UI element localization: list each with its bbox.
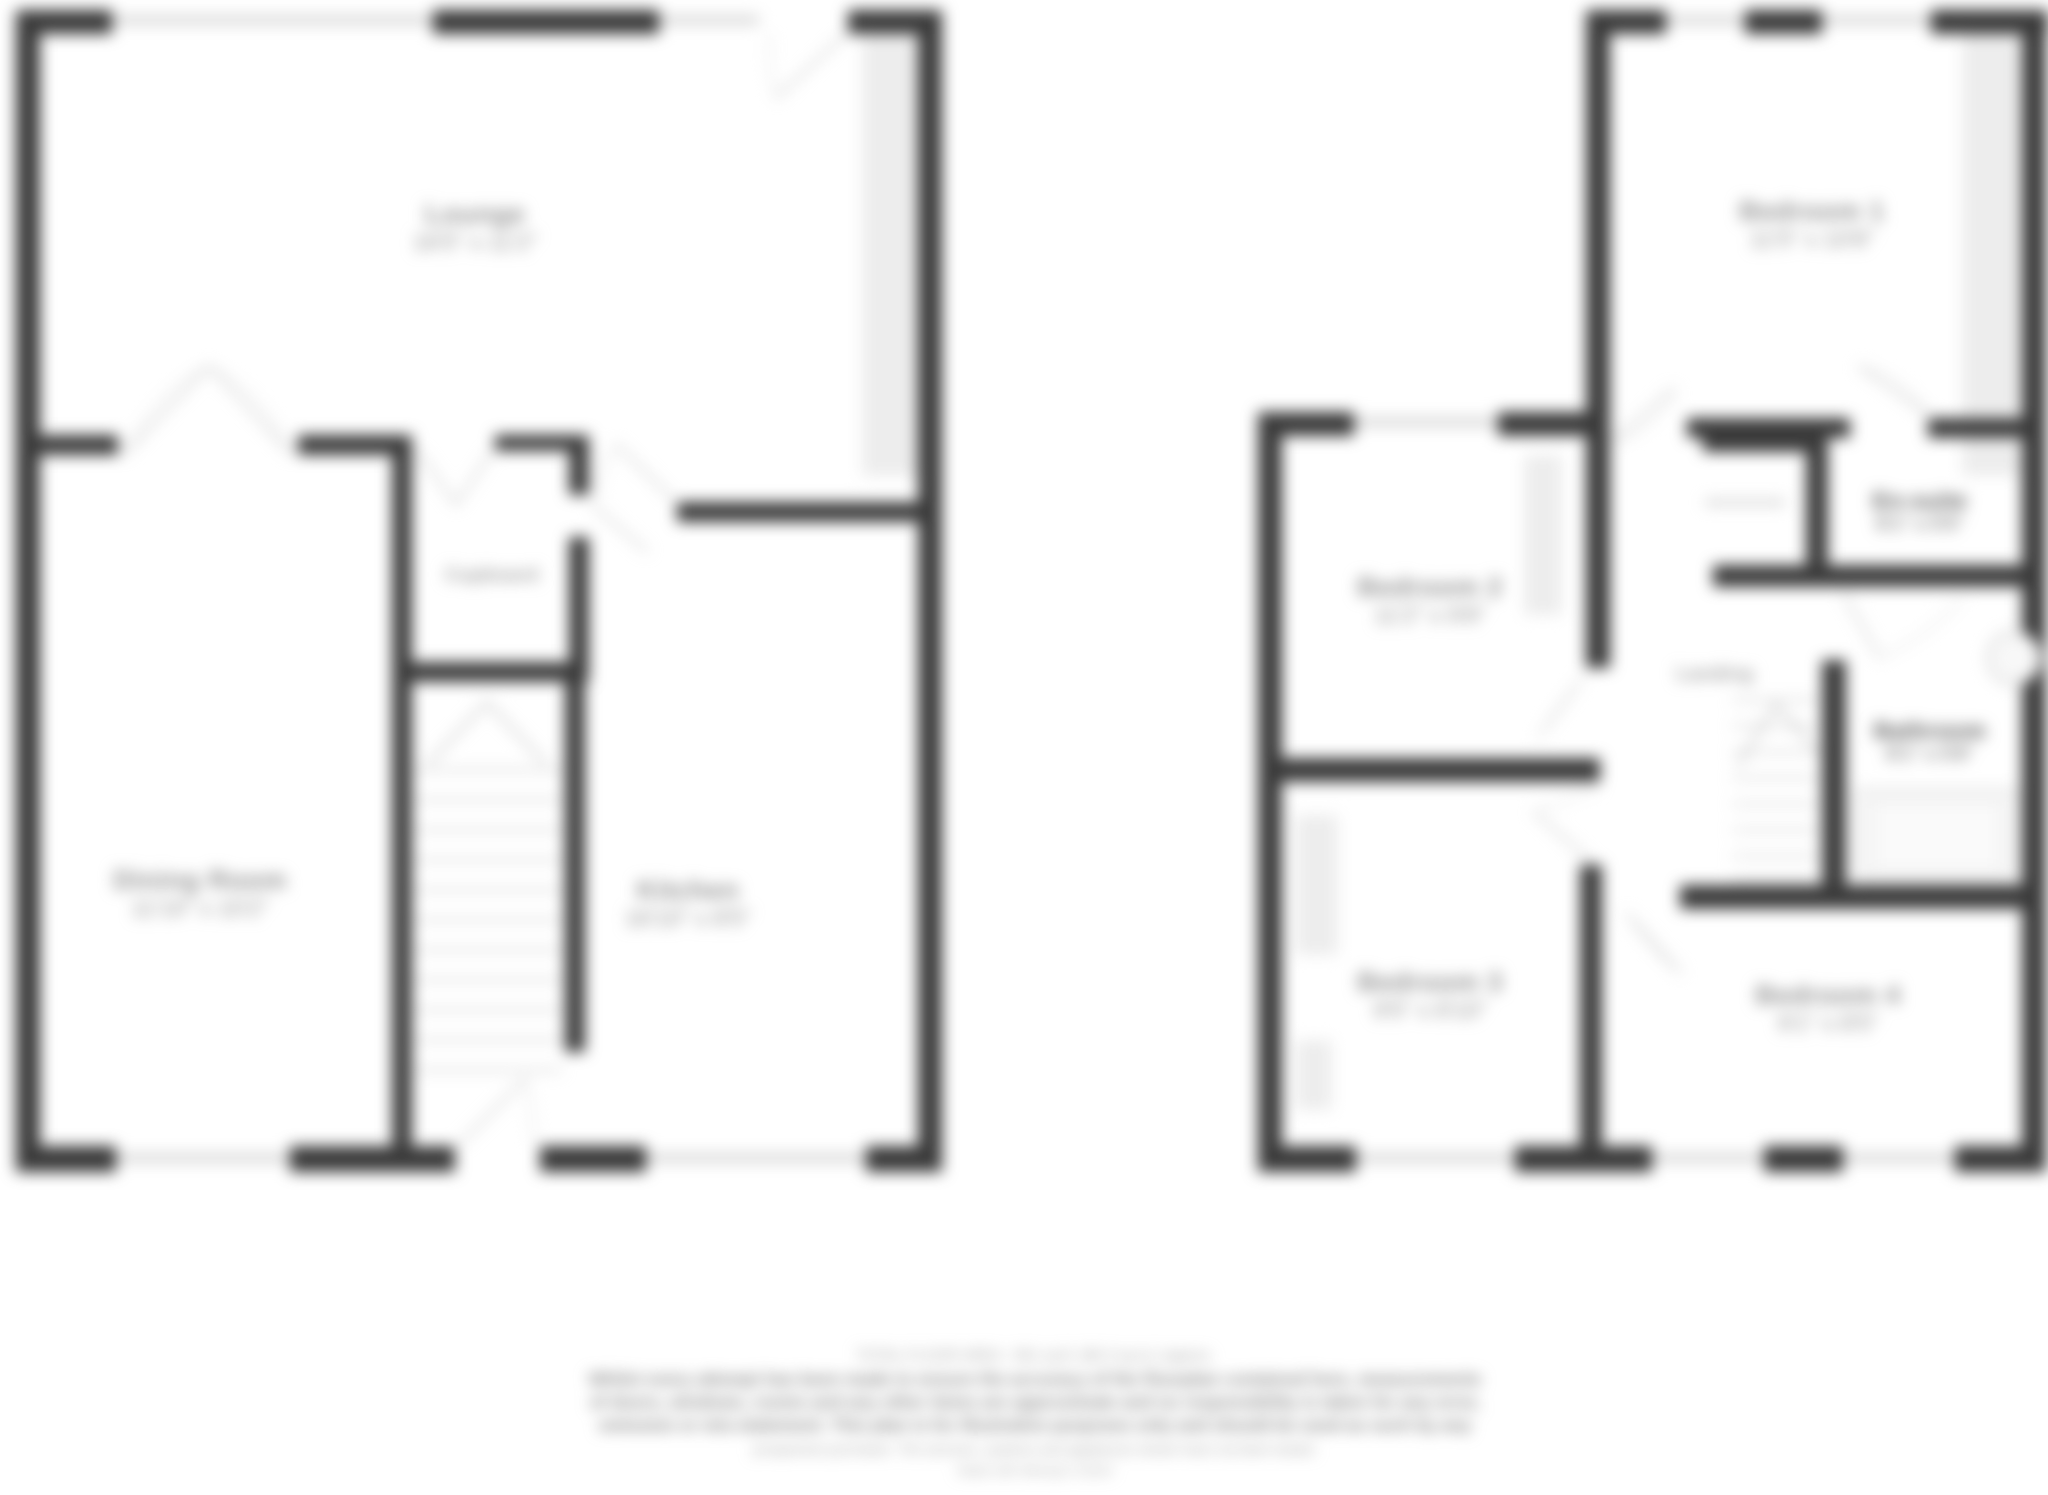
room-label-bedroom-3: Bedroom 3 9'5" x 8'10" xyxy=(1357,967,1503,1023)
ff-stairs xyxy=(1732,700,1818,880)
room-name: Bedroom 4 xyxy=(1755,980,1901,1010)
gf-light-strips xyxy=(862,34,918,476)
disclaimer-block: TOTAL FLOOR AREA : 961 sq.ft. (89.3 sq.m… xyxy=(512,1344,1558,1481)
room-name: Bathroom xyxy=(1874,719,1987,744)
disclaimer-line-3: omission or mis-statement. This plan is … xyxy=(512,1414,1558,1437)
room-dimensions: 11'2" x 9'8" xyxy=(1357,602,1503,628)
gf-stairs xyxy=(415,702,562,1070)
disclaimer-line-2: of doors, windows, rooms and any other i… xyxy=(512,1391,1558,1414)
room-name: Lounge xyxy=(413,199,537,229)
room-dimensions: 8'1" x 5'6" xyxy=(1874,744,1987,766)
room-dimensions: 11'5" x 10'8" xyxy=(1739,226,1885,252)
disclaimer-line-1: Whilst every attempt has been made to en… xyxy=(512,1368,1558,1391)
room-label-bedroom-4: Bedroom 4 9'1" x 8'5" xyxy=(1755,980,1901,1036)
room-dimensions: 16'10" x 8'5" xyxy=(625,905,751,931)
room-name: Bedroom 3 xyxy=(1357,967,1503,997)
room-label-bathroom: Bathroom 8'1" x 5'6" xyxy=(1874,719,1987,766)
gf-windows xyxy=(112,14,866,1164)
metropix-credit: Made with Metropix ©2024 xyxy=(512,1461,1558,1481)
room-dimensions: 9'1" x 8'5" xyxy=(1755,1010,1901,1036)
room-name: Bedroom 1 xyxy=(1739,196,1885,226)
total-floor-area-line: TOTAL FLOOR AREA : 961 sq.ft. (89.3 sq.m… xyxy=(512,1344,1558,1368)
room-label-bedroom-1: Bedroom 1 11'5" x 10'8" xyxy=(1739,196,1885,252)
cupboard-label: Cupboard xyxy=(445,565,539,587)
room-label-lounge: Lounge 16'5" x 11'2" xyxy=(413,199,537,255)
landing-label: Landing xyxy=(1676,664,1753,686)
blurred-floorplan-image: Lounge 16'5" x 11'2" Dining Room 11'10" … xyxy=(0,0,2048,1495)
room-name: Bedroom 2 xyxy=(1357,572,1503,602)
room-dimensions: 16'5" x 11'2" xyxy=(413,229,537,255)
gf-walls xyxy=(16,10,942,1172)
disclaimer-line-4: prospective purchaser. The services, sys… xyxy=(512,1437,1558,1461)
room-label-kitchen: Kitchen 16'10" x 8'5" xyxy=(625,875,751,931)
room-dimensions: 9'5" x 8'10" xyxy=(1357,997,1503,1023)
ff-bath-fixtures xyxy=(1705,500,2040,882)
room-label-ensuite: En-suite 6'1" x 5'5" xyxy=(1873,489,1968,536)
room-name: En-suite xyxy=(1873,489,1968,514)
room-label-bedroom-2: Bedroom 2 11'2" x 9'8" xyxy=(1357,572,1503,628)
floorplan-page: Lounge 16'5" x 11'2" Dining Room 11'10" … xyxy=(0,0,2048,1495)
room-name: Kitchen xyxy=(625,875,751,905)
ground-floor-plan xyxy=(16,10,942,1172)
room-dimensions: 11'10" x 10'2" xyxy=(113,895,286,921)
room-label-dining-room: Dining Room 11'10" x 10'2" xyxy=(113,865,286,921)
room-name: Dining Room xyxy=(113,865,286,895)
room-dimensions: 6'1" x 5'5" xyxy=(1873,514,1968,536)
